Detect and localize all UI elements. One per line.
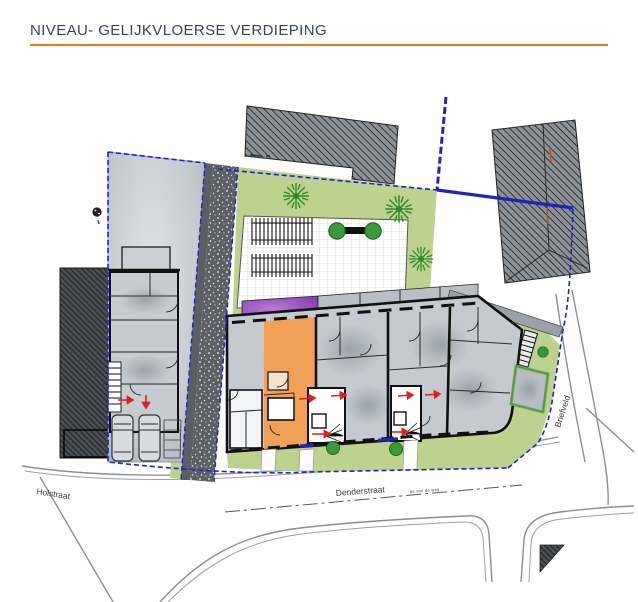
- neighbour-garage-west: [64, 430, 110, 457]
- south-walkway: [299, 449, 314, 471]
- south-walkway: [261, 449, 276, 471]
- bush-icon: [390, 443, 403, 456]
- bench-bush-icon: [365, 223, 381, 239]
- stair-core: [391, 386, 421, 441]
- bush-icon: [538, 347, 548, 357]
- stair-core: [308, 388, 345, 443]
- hatched-island: [540, 545, 564, 572]
- west-entrance-rooms: [228, 390, 262, 448]
- briefveld-east-edge: [572, 290, 608, 505]
- site-plan-drawing: Holstraat Denderstraat Briefveld as van …: [0, 0, 638, 602]
- bush-icon: [327, 442, 340, 455]
- entry-arrow: [299, 398, 315, 399]
- survey-marker-icon: [92, 207, 101, 224]
- entry-arrow: [331, 395, 346, 396]
- neighbour-building-northeast: [492, 120, 590, 283]
- briefveld-west-edge: [556, 294, 585, 462]
- south-walkway: [403, 440, 418, 470]
- entry-arrow: [425, 394, 440, 395]
- existing-stairs: [108, 362, 121, 412]
- parked-car: [139, 415, 160, 461]
- bench-bush-icon: [329, 223, 345, 239]
- street-label-denderstraat: Denderstraat: [335, 484, 385, 498]
- entry-arrow: [398, 395, 413, 396]
- denderstraat-south-curb-inner: [168, 522, 486, 602]
- denderstraat-south-curb: [160, 516, 492, 602]
- site-plan-page: NIVEAU- GELIJKVLOERSE VERDIEPING: [0, 0, 638, 602]
- briefveld-spur: [586, 408, 634, 452]
- parked-car: [112, 415, 133, 461]
- existing-shed: [122, 247, 170, 270]
- street-label-briefveld: Briefveld: [552, 394, 572, 429]
- terrace: [511, 366, 548, 412]
